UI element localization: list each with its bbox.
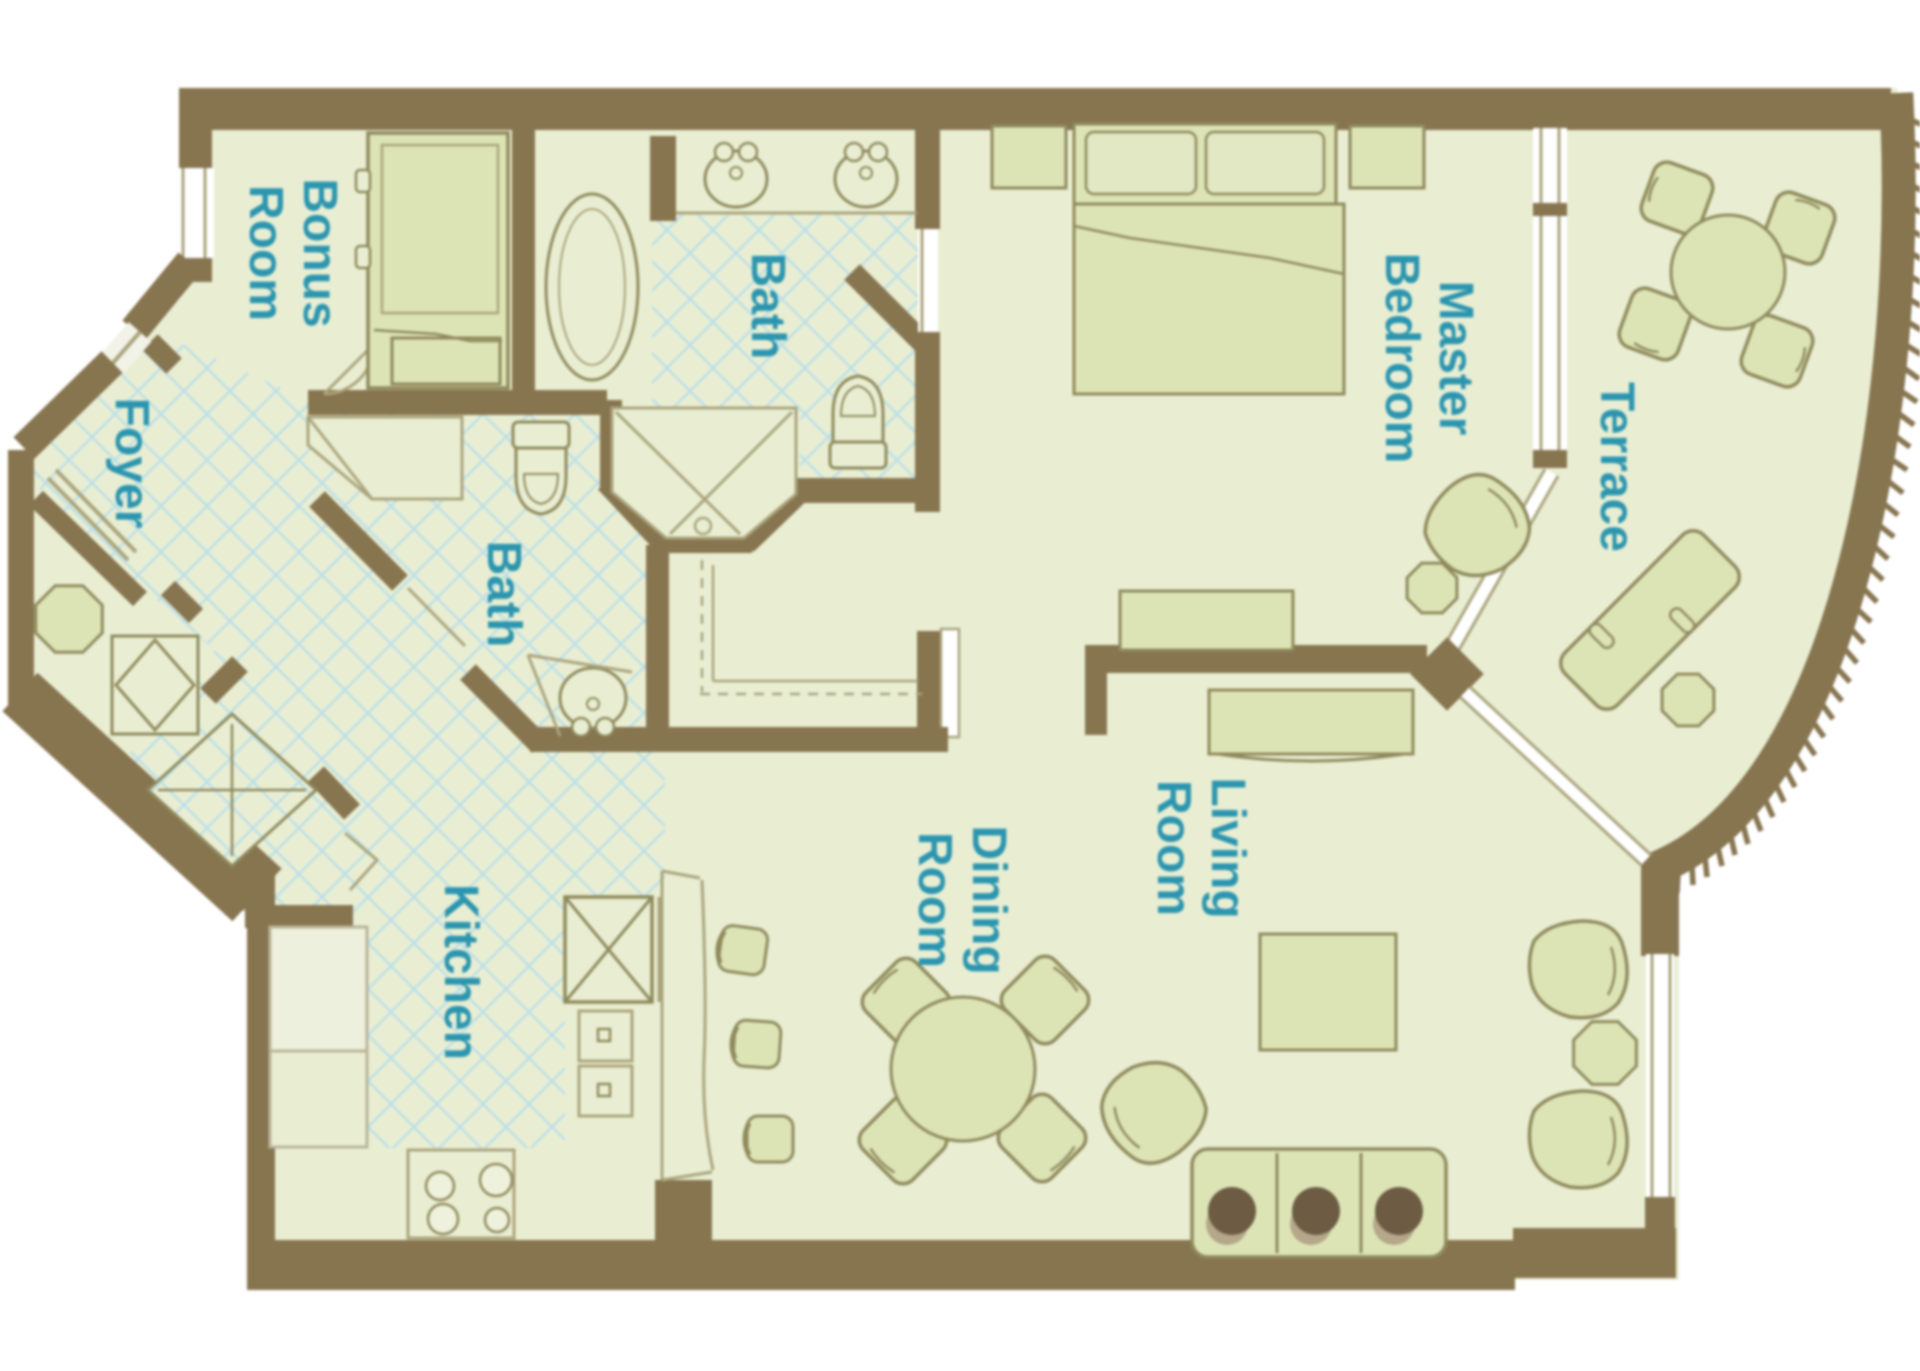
svg-text:Bath: Bath: [477, 541, 530, 648]
svg-text:MasterBedroom: MasterBedroom: [1375, 253, 1482, 464]
svg-text:Kitchen: Kitchen: [434, 884, 487, 1060]
svg-text:Terrace: Terrace: [1590, 382, 1643, 552]
svg-text:LivingRoom: LivingRoom: [1147, 777, 1254, 918]
svg-text:BonusRoom: BonusRoom: [239, 178, 346, 327]
svg-text:Bath: Bath: [741, 253, 794, 360]
svg-text:DiningRoom: DiningRoom: [908, 825, 1015, 974]
svg-text:Foyer: Foyer: [105, 398, 158, 529]
